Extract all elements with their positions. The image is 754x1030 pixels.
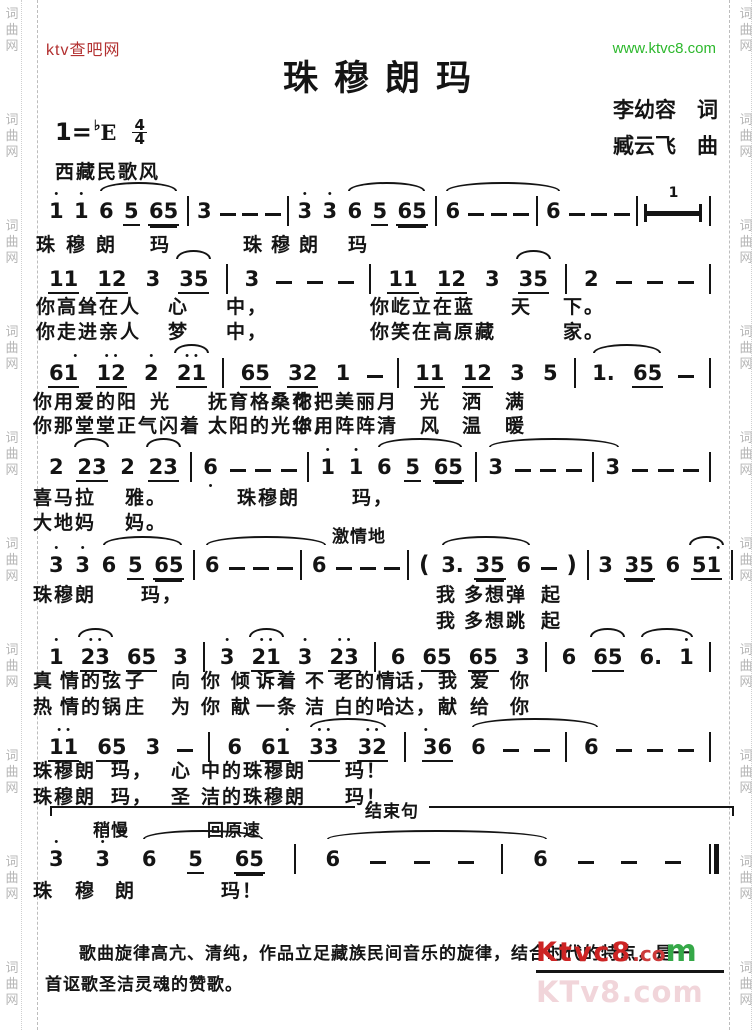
note: 5: [370, 199, 389, 226]
rail-char: 词: [3, 960, 21, 976]
note: 6: [100, 553, 119, 580]
note: 65: [239, 361, 272, 388]
note: 2: [47, 455, 66, 482]
lyric-text: 献: [438, 692, 459, 719]
note: 6: [514, 553, 533, 580]
lyric-text: 中，: [226, 292, 268, 319]
duration-dash: [370, 861, 386, 864]
duration-dash: [534, 749, 550, 752]
lyric-text: 家。: [563, 317, 605, 344]
slur-tie-arc: [310, 718, 386, 727]
lyric-text: 情的弦: [60, 666, 123, 693]
duration-dash: [277, 567, 293, 570]
lyric-text: 洁的珠穆朗: [201, 782, 306, 809]
lyric-text: 喜马拉: [33, 483, 96, 510]
lyric-text: 玛: [348, 230, 369, 257]
barline: [307, 452, 309, 482]
slur-tie-arc: [327, 830, 547, 839]
lyric-text: 光: [150, 387, 171, 414]
lyric-text: 玛！: [345, 756, 387, 783]
note-number: 5: [404, 455, 421, 482]
lyric-text: 为: [171, 692, 192, 719]
note: 3: [603, 455, 622, 482]
slur-tie-arc: [446, 182, 560, 191]
duration-dash: [678, 749, 694, 752]
note: 3•: [47, 553, 66, 580]
key-prefix: 1=: [55, 118, 92, 146]
time-signature: 4 4: [132, 119, 146, 146]
note: 12: [461, 361, 494, 388]
rail-char: 词: [737, 536, 754, 552]
duration-dash: [678, 281, 694, 284]
note: 32: [286, 361, 319, 388]
note: 65: [233, 847, 266, 874]
lyric-text: 你把美丽月: [293, 387, 398, 414]
note-number: 3: [509, 361, 526, 388]
octave-dot-above: ••: [327, 636, 360, 644]
note-number: (: [418, 553, 431, 580]
note: 65: [152, 553, 185, 580]
note-number: 3: [48, 847, 65, 874]
lyric-row: 珠穆朗玛珠穆朗玛: [0, 230, 754, 254]
octave-dot-above: ••: [79, 636, 112, 644]
lyric-text: 玛: [150, 230, 171, 257]
lyric-text: 朗: [299, 230, 320, 257]
rail-char: 曲: [3, 22, 21, 38]
octave-dot-above: •: [296, 636, 315, 644]
watermark-red-text: Ktvc8: [536, 937, 632, 968]
note: 1•: [347, 455, 366, 482]
note: 65: [432, 455, 465, 482]
note-number: 12: [436, 267, 467, 294]
note: 1•: [318, 455, 337, 482]
lyric-row: 珠穆朗玛，我多想弹起: [0, 580, 754, 604]
note-number: 2: [143, 361, 160, 388]
note-number: 6: [532, 847, 549, 874]
duration-dash: [229, 567, 245, 570]
note-number: 5: [187, 847, 204, 874]
lyric-text: 玛！: [221, 876, 263, 903]
note: 1: [334, 361, 353, 388]
note-number: 65: [433, 455, 464, 482]
note-number: 1: [335, 361, 352, 388]
rail-char: 曲: [3, 552, 21, 568]
rail-char-group: 词曲网: [737, 6, 754, 54]
lyric-text: 你: [201, 692, 222, 719]
duration-dash: [265, 213, 281, 216]
lyric-text: 梦: [168, 317, 189, 344]
octave-dot-above: •: [142, 352, 161, 360]
note: 6: [324, 847, 343, 874]
barline: [435, 196, 437, 226]
barline: [397, 358, 399, 388]
note: 5: [122, 199, 141, 226]
lyric-row: 你用爱的阳光抚育格桑花，你把美丽月光洒满: [0, 387, 754, 411]
octave-dot-above: •: [295, 190, 314, 198]
barline: [501, 844, 503, 874]
octave-dot-above: •: [421, 726, 454, 734]
note: 3•: [47, 847, 66, 874]
key-signature: 1=♭E 4 4: [55, 118, 147, 146]
duration-dash: [683, 469, 699, 472]
note-number: 35: [178, 267, 209, 294]
note: 35: [473, 553, 506, 580]
rail-char-group: 词曲网: [3, 112, 21, 160]
note: 2•: [142, 361, 161, 388]
slur-tie-arc: [348, 182, 425, 191]
lyric-row: 我多想跳起: [0, 606, 754, 630]
note: 6: [443, 199, 462, 226]
lyric-text: 话，: [395, 666, 437, 693]
lyric-text: 心: [171, 756, 192, 783]
note-number: 6: [202, 455, 219, 482]
lyric-text: 玛，: [111, 782, 153, 809]
note-number: 35: [624, 553, 655, 580]
lyric-text: 珠穆朗: [33, 580, 96, 607]
note-number: 21: [176, 361, 207, 388]
lyric-text: 洒: [462, 387, 483, 414]
note-number: ): [565, 553, 578, 580]
slur-tie-arc: [593, 344, 661, 353]
lyric-row: 热情的锅庄为你献一条洁白的哈达，献给你: [0, 692, 754, 716]
note: 2: [118, 455, 137, 482]
note-number: 3: [48, 553, 65, 580]
note: 12: [435, 267, 468, 294]
lyric-text: 珠: [36, 230, 57, 257]
duration-dash: [616, 749, 632, 752]
note-number: 51: [691, 553, 722, 580]
note: 6: [531, 847, 550, 874]
note: 12: [95, 267, 128, 294]
note-number: 3: [484, 267, 501, 294]
note-number: 3: [604, 455, 621, 482]
barline: [636, 196, 638, 226]
credits: 李幼容 词 臧云飞 曲: [613, 92, 718, 164]
rail-char: 曲: [3, 340, 21, 356]
barline: [587, 550, 589, 580]
note-number: 6: [98, 199, 115, 226]
barline: [300, 550, 302, 580]
parenthesis: ): [564, 553, 579, 580]
duration-dash: [614, 213, 630, 216]
note-number: 2: [119, 455, 136, 482]
ending-label: 结束句: [355, 797, 429, 822]
lyric-text: 多想跳: [464, 606, 527, 633]
note: 3: [483, 267, 502, 294]
lyric-text: 给: [470, 692, 491, 719]
note-number: 2: [48, 455, 65, 482]
note-number: 3: [487, 455, 504, 482]
duration-dash: [566, 469, 582, 472]
composer-credit: 臧云飞 曲: [613, 128, 718, 164]
slur-tie-arc: [378, 438, 462, 447]
note-number: 65: [240, 361, 271, 388]
octave-dot-above: •: [347, 446, 366, 454]
rail-char: 词: [737, 854, 754, 870]
rail-char: 网: [3, 356, 21, 372]
lyric-text: 珠穆朗: [33, 756, 96, 783]
note-number: 1: [319, 455, 336, 482]
duration-dash: [276, 281, 292, 284]
watermark-green-text: m: [665, 934, 696, 969]
octave-dot-above: •: [47, 190, 66, 198]
barline: [709, 452, 711, 482]
note-number: 3: [597, 553, 614, 580]
note-number: 12: [96, 267, 127, 294]
note-number: 1: [48, 199, 65, 226]
note-number: 6: [141, 847, 158, 874]
measure-rest: 1: [644, 200, 702, 226]
octave-dot-above: ••: [307, 726, 340, 734]
note-number: 65: [396, 199, 427, 226]
rail-char: 词: [3, 642, 21, 658]
lyric-text: 达，: [395, 692, 437, 719]
barline: [369, 264, 371, 294]
note: 6: [310, 553, 329, 580]
note-number: 35: [474, 553, 505, 580]
lyric-row: 你走进亲人梦中，你笑在高原藏家。: [0, 317, 754, 341]
note: 12••: [95, 361, 128, 388]
rest-cap: [699, 204, 702, 222]
lyric-text: 爱: [470, 666, 491, 693]
lyric-row: 大地妈妈。: [0, 508, 754, 532]
lyric-row: 你那堂堂正气闪着太阳的光华，你用阵阵清风温暖: [0, 411, 754, 435]
rail-char: 曲: [737, 552, 754, 568]
note: 6: [140, 847, 159, 874]
rail-char: 网: [737, 144, 754, 160]
lyric-text: 白的哈: [334, 692, 397, 719]
watermark-underline: [536, 970, 724, 973]
rail-char: 曲: [3, 128, 21, 144]
music-line: 2232236•1•1•656533: [45, 436, 713, 490]
lyric-text: 一条: [256, 692, 298, 719]
lyric-text: 向: [171, 666, 192, 693]
note: 6: [203, 553, 222, 580]
note: 35: [517, 267, 550, 294]
note: 5: [126, 553, 145, 580]
note: 35: [177, 267, 210, 294]
octave-dot-above: ••: [250, 636, 283, 644]
note-number: 2: [583, 267, 600, 294]
lyric-text: 庄: [125, 692, 146, 719]
rail-char-group: 词曲网: [737, 536, 754, 584]
lyric-text: 你用阵阵清: [293, 411, 398, 438]
rail-char-group: 词曲网: [737, 430, 754, 478]
sheet-music-page: 词曲网词曲网词曲网词曲网词曲网词曲网词曲网词曲网词曲网词曲网 词曲网词曲网词曲网…: [0, 0, 754, 1030]
lyric-text: 雅。: [125, 483, 167, 510]
note: 11: [386, 267, 419, 294]
barline: [193, 550, 195, 580]
lyric-row: 珠穆朗玛，心中的珠穆朗玛！: [0, 756, 754, 780]
note-number: 5: [371, 199, 388, 226]
note: 3: [596, 553, 615, 580]
ending-bracket: 结束句: [50, 806, 734, 822]
lyric-text: 情的锅: [60, 692, 123, 719]
note-number: 12: [96, 361, 127, 388]
barline: [709, 264, 711, 294]
note-number: 11: [387, 267, 418, 294]
music-line: 1•1•656533•3•6565661: [45, 180, 713, 234]
slur-tie-arc: [74, 438, 109, 447]
rail-char: 词: [737, 6, 754, 22]
note-number: 3: [74, 553, 91, 580]
lyric-text: 你那堂堂正气闪着: [33, 411, 201, 438]
slur-tie-arc: [146, 438, 181, 447]
lyricist-credit: 李幼容 词: [613, 92, 718, 128]
note: 6•: [201, 455, 220, 482]
lyric-text: 温: [462, 411, 483, 438]
time-bottom: 4: [134, 133, 144, 146]
note-number: 3: [196, 199, 213, 226]
note: 3•: [320, 199, 339, 226]
note-number: 6: [101, 553, 118, 580]
rail-char: 词: [737, 642, 754, 658]
duration-dash: [177, 749, 193, 752]
note: 6: [544, 199, 563, 226]
octave-dot-above: •: [73, 544, 92, 552]
lyric-text: 玛，: [141, 580, 183, 607]
note-number: 6: [376, 455, 393, 482]
rail-char-group: 词曲网: [3, 536, 21, 584]
duration-dash: [468, 213, 484, 216]
lyric-text: 你笑在高原藏: [370, 317, 496, 344]
rail-char: 词: [3, 112, 21, 128]
final-barline: [709, 844, 719, 874]
note-number: 6: [311, 553, 328, 580]
note: 5: [403, 455, 422, 482]
lyric-text: 子: [125, 666, 146, 693]
lyric-text: 珠: [33, 876, 54, 903]
note-number: 11: [414, 361, 445, 388]
duration-dash: [591, 213, 607, 216]
lyric-text: 诉着: [256, 666, 298, 693]
lyric-text: 圣: [171, 782, 192, 809]
duration-dash: [578, 861, 594, 864]
octave-dot-above: •: [218, 636, 237, 644]
note-number: 1: [73, 199, 90, 226]
rest-count: 1: [644, 185, 702, 201]
note: 11: [413, 361, 446, 388]
rail-char: 网: [737, 356, 754, 372]
duration-dash: [569, 213, 585, 216]
lyric-text: 我: [438, 666, 459, 693]
duration-dash: [338, 281, 354, 284]
note: 21••: [175, 361, 208, 388]
lyric-row: 真情的弦子向你倾诉着不老的情话，我爱你: [0, 666, 754, 690]
rail-char-group: 词曲网: [3, 960, 21, 1008]
lyric-text: 我: [436, 606, 457, 633]
note: 3•⌒•: [93, 847, 112, 874]
bracket-tick-right: [732, 806, 734, 816]
note: 61•: [47, 361, 80, 388]
duration-dash: [384, 567, 400, 570]
barline: [226, 264, 228, 294]
lyric-text: 不: [305, 666, 326, 693]
music-line: 3•3•⌒•656566稍慢回原速: [45, 828, 721, 882]
rail-char: 词: [3, 854, 21, 870]
final-bar-thick: [714, 844, 719, 874]
duration-dash: [281, 469, 297, 472]
note: 11: [47, 267, 80, 294]
lyric-text: 你用爱的阳: [33, 387, 138, 414]
note: 6: [345, 199, 364, 226]
octave-dot-above: •: [47, 838, 66, 846]
note: 3: [243, 267, 262, 294]
watermark-dot-text: .co: [632, 942, 665, 966]
note: 1•: [72, 199, 91, 226]
note: 65: [395, 199, 428, 226]
duration-dash: [647, 749, 663, 752]
lyric-text: 穆: [75, 876, 96, 903]
note: 3: [195, 199, 214, 226]
octave-dot-above: •: [259, 726, 292, 734]
slur-tie-arc: [103, 536, 182, 545]
note: 65: [631, 361, 664, 388]
note-number: 11: [48, 267, 79, 294]
lyric-text: 穆: [271, 230, 292, 257]
rail-char: 网: [3, 992, 21, 1008]
note-number: 12: [462, 361, 493, 388]
note-number: 5: [127, 553, 144, 580]
barline: [294, 844, 296, 874]
note: 3•: [73, 553, 92, 580]
lyric-text: 天: [511, 292, 532, 319]
note-number: 1.: [591, 361, 616, 388]
watermark: Ktvc8.com KTv8.com: [536, 934, 748, 1009]
note: 2: [582, 267, 601, 294]
octave-dot-above: •: [690, 544, 723, 552]
duration-dash: [503, 749, 519, 752]
note-number: 6: [204, 553, 221, 580]
duration-dash: [414, 861, 430, 864]
note-number: 6: [665, 553, 682, 580]
rail-char: 曲: [737, 446, 754, 462]
note-number: 3: [244, 267, 261, 294]
rail-char: 词: [3, 6, 21, 22]
duration-dash: [360, 567, 376, 570]
barline: [731, 550, 733, 580]
duration-dash: [255, 469, 271, 472]
note-number: 65: [153, 553, 184, 580]
octave-dot-above: ••: [47, 726, 80, 734]
duration-dash: [307, 281, 323, 284]
duration-dash: [647, 281, 663, 284]
octave-dot-above: •: [677, 636, 696, 644]
duration-dash: [253, 567, 269, 570]
octave-dot-above: •: [320, 190, 339, 198]
note-number: 3: [145, 267, 162, 294]
barline: [190, 452, 192, 482]
lyric-text: 洁: [305, 692, 326, 719]
note: 5: [186, 847, 205, 874]
lyric-text: 风: [420, 411, 441, 438]
lyric-text: 起: [541, 580, 562, 607]
note: 35: [623, 553, 656, 580]
rail-char: 曲: [737, 340, 754, 356]
lyric-text: 老的情: [334, 666, 397, 693]
note-number: 6: [545, 199, 562, 226]
duration-dash: [541, 567, 557, 570]
lyric-text: 妈。: [125, 508, 167, 535]
lyric-text: 起: [541, 606, 562, 633]
duration-dash: [367, 375, 383, 378]
note-number: 32: [287, 361, 318, 388]
lyric-text: 珠穆朗: [33, 782, 96, 809]
lyric-text: 你: [510, 692, 531, 719]
slur-tie-arc: [472, 718, 598, 727]
lyric-text: 真: [33, 666, 54, 693]
slur-tie-arc: [489, 438, 619, 447]
